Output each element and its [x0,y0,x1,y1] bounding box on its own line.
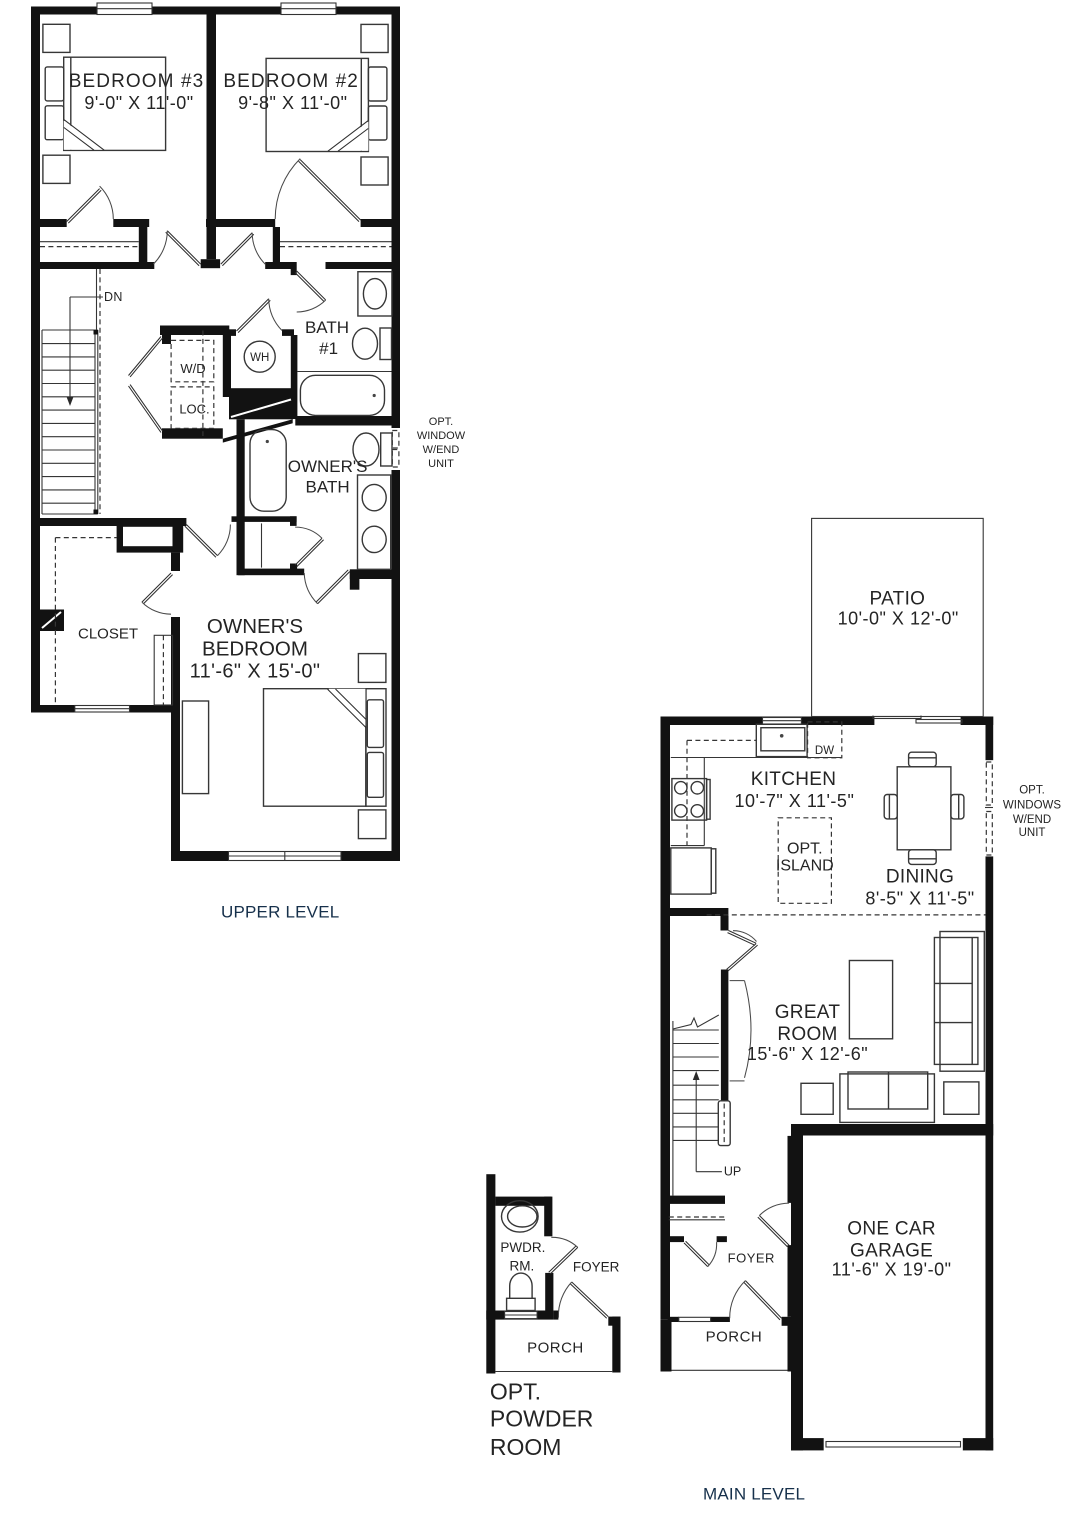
svg-text:CLOSET: CLOSET [78,625,138,642]
svg-text:W/END: W/END [1013,814,1051,826]
svg-text:ONE CAR: ONE CAR [847,1218,936,1239]
svg-text:DINING: DINING [886,866,954,887]
svg-text:9'-0" X 11'-0": 9'-0" X 11'-0" [84,93,193,113]
svg-text:POWDER: POWDER [490,1406,594,1432]
svg-text:RM.: RM. [510,1259,535,1274]
svg-text:PORCH: PORCH [706,1328,763,1345]
svg-text:10'-7" X 11'-5": 10'-7" X 11'-5" [734,791,854,811]
svg-text:BATH: BATH [306,478,350,497]
svg-text:9'-8" X 11'-0": 9'-8" X 11'-0" [238,93,347,113]
svg-text:11'-6" X 15'-0": 11'-6" X 15'-0" [190,661,321,683]
svg-text:GARAGE: GARAGE [850,1241,933,1262]
svg-text:ROOM: ROOM [490,1434,562,1460]
svg-text:10'-0" X 12'-0": 10'-0" X 12'-0" [838,609,959,629]
svg-text:W/D: W/D [180,361,205,376]
svg-text:UP: UP [724,1165,741,1179]
svg-text:OWNER'S: OWNER'S [288,457,368,476]
svg-text:UNIT: UNIT [428,458,454,470]
svg-text:OPT.: OPT. [429,416,453,428]
svg-text:DW: DW [815,745,834,757]
svg-text:15'-6" X 12'-6": 15'-6" X 12'-6" [747,1044,868,1064]
svg-text:BEDROOM #2: BEDROOM #2 [223,71,359,92]
svg-text:BEDROOM: BEDROOM [202,638,308,661]
svg-text:BATH: BATH [305,318,349,337]
svg-text:11'-6" X 19'-0": 11'-6" X 19'-0" [832,1260,952,1280]
svg-text:PATIO: PATIO [870,589,926,610]
svg-text:ISLAND: ISLAND [776,858,834,875]
svg-text:GREAT: GREAT [775,1002,841,1023]
svg-text:OWNER'S: OWNER'S [207,615,303,638]
svg-text:FOYER: FOYER [728,1251,775,1266]
svg-text:WINDOWS: WINDOWS [1003,799,1061,811]
svg-text:ROOM: ROOM [777,1024,837,1045]
svg-text:DN: DN [104,290,123,304]
svg-text:LOC.: LOC. [179,402,209,417]
svg-text:UNIT: UNIT [1019,827,1046,839]
svg-text:PWDR.: PWDR. [500,1240,545,1255]
svg-text:PORCH: PORCH [527,1339,584,1356]
svg-text:OPT.: OPT. [490,1379,541,1405]
svg-text:BEDROOM #3: BEDROOM #3 [69,71,205,92]
svg-text:W/END: W/END [423,444,460,456]
svg-text:FOYER: FOYER [573,1260,620,1275]
svg-text:8'-5" X 11'-5": 8'-5" X 11'-5" [865,889,974,909]
svg-text:UPPER LEVEL: UPPER LEVEL [221,902,339,921]
svg-text:#1: #1 [319,339,338,358]
svg-text:WH: WH [250,352,269,364]
svg-text:OPT.: OPT. [1019,785,1045,797]
svg-text:WINDOW: WINDOW [417,430,466,442]
svg-text:KITCHEN: KITCHEN [751,769,837,790]
svg-text:MAIN LEVEL: MAIN LEVEL [703,1485,805,1504]
svg-text:OPT.: OPT. [787,841,823,858]
